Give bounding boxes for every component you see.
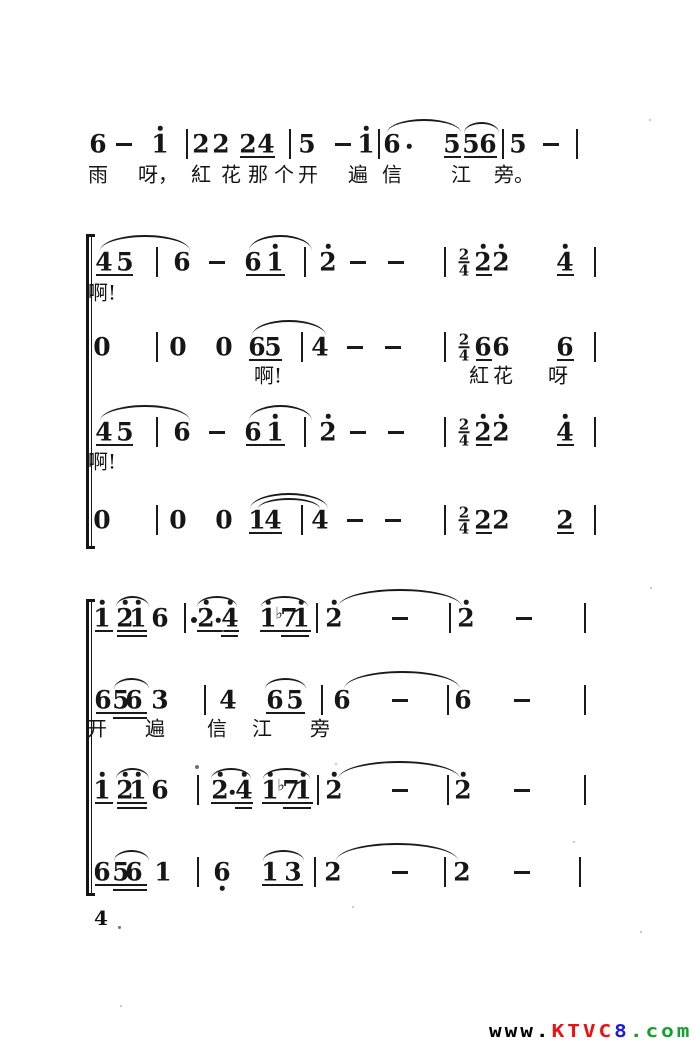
rhythm-underline (95, 884, 147, 886)
watermark-segment: 8 (614, 1021, 630, 1041)
barline (594, 417, 596, 447)
slur-arc (100, 405, 190, 421)
barline (314, 857, 316, 887)
lyric-syllable: 呀 (548, 360, 568, 389)
barline (444, 505, 446, 535)
note-digit: 0 (93, 508, 110, 533)
note-digit: 6 (93, 860, 110, 885)
lyric-syllable: 信 (207, 713, 227, 742)
note-digit: 1 (357, 132, 374, 157)
barline (304, 417, 306, 447)
note-digit: 6 (266, 688, 283, 713)
note-digit: 2 (239, 132, 256, 157)
barline (156, 505, 158, 535)
lyric-syllable: 遍 (348, 159, 368, 188)
ink-speck (573, 841, 575, 843)
note-digit: 6 (244, 420, 261, 445)
lyric-syllable: 雨 (88, 159, 108, 188)
note-digit: 1 (93, 778, 110, 803)
extension-dash (347, 346, 363, 349)
rhythm-underline (557, 444, 574, 446)
note-digit: 2 (211, 778, 228, 803)
system-bracket-serif-bottom (86, 546, 95, 549)
barline (584, 685, 586, 715)
barline (301, 505, 303, 535)
octave-dot-above (464, 600, 469, 605)
extension-dash (514, 699, 530, 702)
slur-arc (114, 850, 149, 861)
note-digit: 2 (192, 132, 209, 157)
octave-dot-above (326, 414, 331, 419)
system-bracket-serif-bottom (86, 893, 95, 896)
note-digit: 1 (129, 606, 146, 631)
extension-dash (392, 789, 408, 792)
note-digit: 0 (169, 335, 186, 360)
rhythm-underline (262, 884, 303, 886)
barline (184, 603, 186, 633)
note-digit: 4 (95, 420, 112, 445)
note-digit: 1 (261, 860, 278, 885)
note-digit: 0 (215, 335, 232, 360)
slur-arc (263, 850, 304, 861)
rhythm-underline (211, 802, 253, 804)
slur-arc (249, 235, 312, 251)
ink-speck (352, 906, 354, 908)
rhythm-underline (476, 532, 492, 534)
octave-dot-above (332, 600, 337, 605)
time-sig-denominator: 4 (459, 434, 470, 446)
time-signature: 24 (459, 248, 470, 276)
lyric-syllable: 开 (298, 159, 318, 188)
rhythm-underline (557, 532, 574, 534)
extension-dash (209, 431, 225, 434)
barline (197, 775, 199, 805)
barline (378, 129, 380, 159)
octave-dot-below (220, 886, 225, 891)
barline (444, 332, 446, 362)
lyric-syllable: 紅 (469, 360, 489, 389)
slur-arc (387, 119, 461, 133)
note-digit: 0 (93, 335, 110, 360)
ink-speck (222, 630, 224, 632)
rhythm-underline (117, 630, 147, 632)
note-digit: 6 (474, 335, 491, 360)
lyric-syllable: 紅 (191, 159, 211, 188)
note-digit: 2 (556, 508, 573, 533)
extension-dash (350, 431, 366, 434)
note-digit: 4 (311, 508, 328, 533)
note-digit: 1 (292, 606, 309, 631)
note-digit: 6 (454, 688, 471, 713)
rhythm-underline (117, 802, 147, 804)
note-digit: 2 (492, 250, 509, 275)
barline (186, 129, 188, 159)
rhythm-underline-second (117, 635, 147, 637)
octave-dot-above (326, 244, 331, 249)
system-bracket-serif-top (86, 234, 95, 237)
barline (576, 129, 578, 159)
note-digit: 2 (212, 132, 229, 157)
note-digit: 6 (94, 688, 111, 713)
extension-dash (392, 617, 408, 620)
note-digit: 2 (325, 778, 342, 803)
octave-dot-above (158, 126, 163, 131)
lyric-syllable: 江 (451, 159, 471, 188)
slur-arc (265, 678, 306, 689)
rhythm-underline (197, 630, 239, 632)
system-bracket-inner (91, 601, 92, 893)
barline (594, 505, 596, 535)
octave-dot-above (461, 772, 466, 777)
note-digit: 5 (462, 132, 479, 157)
rhythm-underline (476, 444, 492, 446)
rhythm-underline-second (113, 889, 147, 891)
note-digit: 2 (197, 606, 214, 631)
augmentation-dot (407, 144, 412, 149)
rhythm-underline-second (283, 807, 311, 809)
barline (321, 685, 323, 715)
time-signature: 24 (459, 333, 470, 361)
octave-dot-above (332, 772, 337, 777)
extension-dash (514, 789, 530, 792)
watermark-url: www.KTVC8.com (489, 1021, 692, 1041)
barline (579, 857, 581, 887)
rhythm-underline (95, 802, 113, 804)
note-digit: 3 (151, 688, 168, 713)
slur-arc (197, 596, 237, 607)
slur-arc (338, 761, 460, 779)
note-digit: 4 (311, 335, 328, 360)
slur-arc (252, 320, 326, 336)
extension-dash (347, 519, 363, 522)
watermark-segment: .com (630, 1021, 693, 1041)
lyric-syllable: 旁 (310, 713, 330, 742)
rhythm-underline (95, 630, 113, 632)
time-sig-numerator: 2 (459, 418, 470, 430)
note-digit: 4 (556, 420, 573, 445)
note-digit: 1 (248, 508, 265, 533)
note-digit: 4 (556, 250, 573, 275)
note-digit: 1 (294, 778, 311, 803)
note-digit: 6 (125, 860, 142, 885)
barline (204, 685, 206, 715)
extension-dash (392, 699, 408, 702)
note-digit: 2 (325, 606, 342, 631)
octave-dot-above (100, 772, 105, 777)
bold-dot (191, 617, 197, 623)
octave-dot-above (499, 244, 504, 249)
octave-dot-above (100, 600, 105, 605)
slur-arc (100, 235, 190, 251)
note-digit: 6 (213, 860, 230, 885)
note-digit: 0 (215, 508, 232, 533)
note-digit: 2 (492, 420, 509, 445)
extension-dash (335, 143, 351, 146)
note-digit: 0 (169, 508, 186, 533)
barline (156, 247, 158, 277)
watermark-segment: www. (489, 1021, 552, 1041)
barline (304, 247, 306, 277)
extension-dash (514, 871, 530, 874)
ink-speck (118, 926, 121, 929)
note-digit: 6 (479, 132, 496, 157)
slur-arc (464, 122, 499, 133)
rhythm-underline-second (117, 807, 147, 809)
sheet-music-page: 6122245165565雨呀，紅花那个开遍信江旁。45661224224啊!0… (0, 0, 700, 1047)
note-digit: 6 (173, 250, 190, 275)
time-sig-denominator: 4 (459, 522, 470, 534)
lyric-syllable: 呀， (138, 159, 178, 188)
lyric-syllable: 那 (248, 159, 268, 188)
note-digit: 3 (284, 860, 301, 885)
ink-speck (195, 765, 199, 769)
barline (444, 857, 446, 887)
extension-dash (516, 617, 532, 620)
note-digit: 6 (248, 335, 265, 360)
note-digit: 4 (221, 606, 238, 631)
time-sig-numerator: 2 (459, 248, 470, 260)
note-digit: 2 (324, 860, 341, 885)
system-bracket-inner (91, 236, 92, 546)
time-signature: 24 (459, 506, 470, 534)
time-sig-denominator: 4 (459, 264, 470, 276)
barline (447, 685, 449, 715)
extension-dash (543, 143, 559, 146)
extension-dash (350, 261, 366, 264)
system-bracket-serif-top (86, 599, 95, 602)
slur-arc (338, 589, 462, 607)
octave-dot-above (499, 414, 504, 419)
note-digit: 2 (457, 606, 474, 631)
slur-arc (336, 843, 458, 861)
note-digit: 2 (453, 860, 470, 885)
lyric-syllable: 花 (493, 360, 513, 389)
time-sig-denominator: 4 (459, 349, 470, 361)
note-digit: 1 (259, 606, 276, 631)
octave-dot-above (563, 244, 568, 249)
note-digit: 6 (556, 335, 573, 360)
extension-dash (116, 143, 132, 146)
note-digit: 5 (264, 335, 281, 360)
system-bracket-outer (86, 601, 89, 893)
watermark-segment: KTVC (552, 1021, 615, 1041)
note-digit: 1 (266, 250, 283, 275)
slur-arc (116, 596, 149, 607)
note-digit: 4 (235, 778, 252, 803)
note-digit: 2 (474, 508, 491, 533)
note-digit: 2 (474, 250, 491, 275)
note-digit: 2 (474, 420, 491, 445)
barline (447, 775, 449, 805)
octave-dot-above (481, 244, 486, 249)
slur-arc (211, 768, 251, 779)
barline (594, 247, 596, 277)
rhythm-underline (246, 444, 285, 446)
rhythm-underline (262, 802, 313, 804)
note-digit: 4 (219, 688, 236, 713)
rhythm-underline-second (221, 635, 238, 637)
ink-speck (650, 587, 652, 589)
rhythm-underline-second (113, 717, 147, 719)
ink-speck (335, 763, 337, 765)
rhythm-underline (260, 630, 311, 632)
note-digit: 4 (95, 250, 112, 275)
barline (584, 603, 586, 633)
note-digit: 5 (116, 420, 133, 445)
barline (289, 129, 291, 159)
barline (444, 417, 446, 447)
rhythm-underline (557, 274, 574, 276)
note-digit: 5 (443, 132, 460, 157)
note-digit: 1 (151, 132, 168, 157)
extension-dash (388, 431, 404, 434)
rhythm-underline-second (235, 807, 252, 809)
note-digit: 2 (492, 508, 509, 533)
ink-speck (649, 119, 651, 121)
extension-dash (385, 519, 401, 522)
lyric-syllable: 啊! (88, 446, 116, 475)
note-digit: 1 (93, 606, 110, 631)
note-digit: 4 (257, 132, 274, 157)
page-number: 4 (94, 906, 108, 930)
barline (156, 332, 158, 362)
lyric-syllable: 个 (274, 159, 294, 188)
slur-arc (263, 768, 310, 779)
lyric-syllable: 花 (221, 159, 241, 188)
note-digit: 5 (286, 688, 303, 713)
barline (317, 775, 319, 805)
extension-dash (388, 261, 404, 264)
note-digit: 2 (319, 420, 336, 445)
slur-arc (116, 768, 149, 779)
rhythm-underline (476, 274, 492, 276)
time-sig-numerator: 2 (459, 506, 470, 518)
note-digit: 6 (125, 688, 142, 713)
barline (584, 775, 586, 805)
octave-dot-above (563, 414, 568, 419)
barline (316, 603, 318, 633)
barline (197, 857, 199, 887)
note-digit: 1 (266, 420, 283, 445)
note-digit: 1 (261, 778, 278, 803)
barline (502, 129, 504, 159)
time-sig-numerator: 2 (459, 333, 470, 345)
note-digit: 6 (244, 250, 261, 275)
note-digit: 6 (151, 606, 168, 631)
barline (594, 332, 596, 362)
slur-arc (249, 405, 312, 421)
note-digit: 6 (492, 335, 509, 360)
extension-dash (385, 346, 401, 349)
slur-arc (261, 596, 308, 607)
note-digit: 6 (333, 688, 350, 713)
rhythm-underline (246, 274, 285, 276)
note-digit: 5 (116, 250, 133, 275)
barline (444, 247, 446, 277)
ink-speck (640, 931, 642, 933)
note-digit: 6 (89, 132, 106, 157)
octave-dot-above (481, 414, 486, 419)
note-digit: 6 (173, 420, 190, 445)
augmentation-dot (230, 790, 235, 795)
rhythm-underline-second (281, 635, 309, 637)
note-digit: 5 (298, 132, 315, 157)
augmentation-dot (216, 618, 221, 623)
note-digit: 2 (319, 250, 336, 275)
note-digit: 6 (383, 132, 400, 157)
slur-arc (344, 671, 460, 689)
note-digit: 2 (454, 778, 471, 803)
lyric-syllable: 啊! (88, 277, 116, 306)
extension-dash (209, 261, 225, 264)
note-digit: 1 (129, 778, 146, 803)
lyric-syllable: 啊! (254, 360, 282, 389)
note-digit: 5 (509, 132, 526, 157)
slur-arc (114, 678, 149, 689)
time-signature: 24 (459, 418, 470, 446)
rhythm-underline (249, 532, 282, 534)
lyric-syllable: 信 (382, 159, 402, 188)
note-digit: 1 (154, 860, 171, 885)
note-digit: 6 (151, 778, 168, 803)
system-bracket-outer (86, 236, 89, 546)
ink-speck (120, 1005, 122, 1007)
lyric-syllable: 旁。 (494, 159, 534, 188)
barline (301, 332, 303, 362)
lyric-syllable: 遍 (145, 713, 165, 742)
octave-dot-above (364, 126, 369, 131)
barline (156, 417, 158, 447)
barline (449, 603, 451, 633)
lyric-syllable: 江 (252, 713, 272, 742)
extension-dash (392, 871, 408, 874)
note-digit: 4 (264, 508, 281, 533)
